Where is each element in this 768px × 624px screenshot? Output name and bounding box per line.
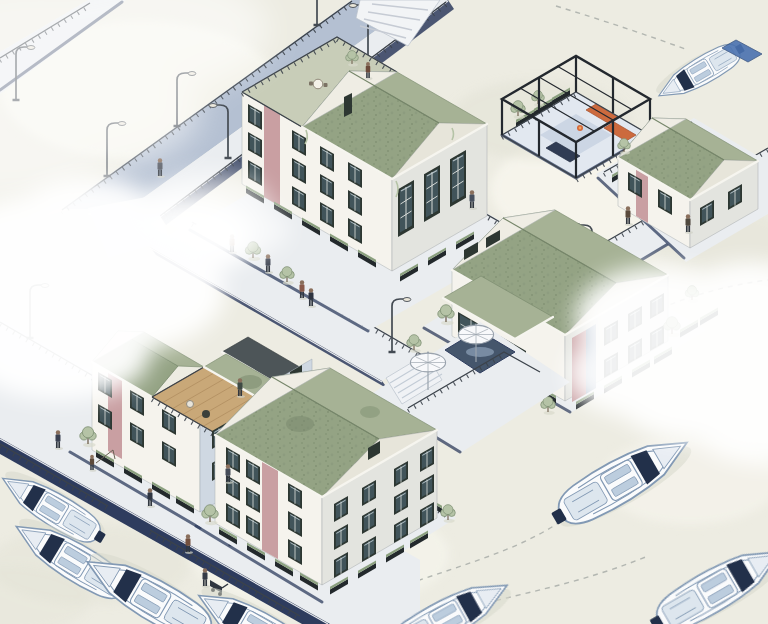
deck-chair — [202, 410, 210, 418]
deck-table — [187, 401, 194, 408]
curtain-wall-window — [398, 180, 414, 237]
isometric-waterfront-village-illustration — [0, 0, 768, 624]
curtain-wall-window — [424, 165, 440, 222]
pink-accent-stripe — [264, 105, 280, 206]
pink-accent-stripe — [262, 462, 278, 559]
curtain-wall-window — [450, 150, 466, 207]
gable-door — [344, 93, 352, 117]
roof-moss-patch — [360, 406, 380, 418]
fire-glow — [579, 127, 582, 130]
screenshot-canvas — [0, 0, 768, 624]
roof-moss-patch — [286, 416, 314, 432]
pond-reflection — [466, 347, 494, 357]
